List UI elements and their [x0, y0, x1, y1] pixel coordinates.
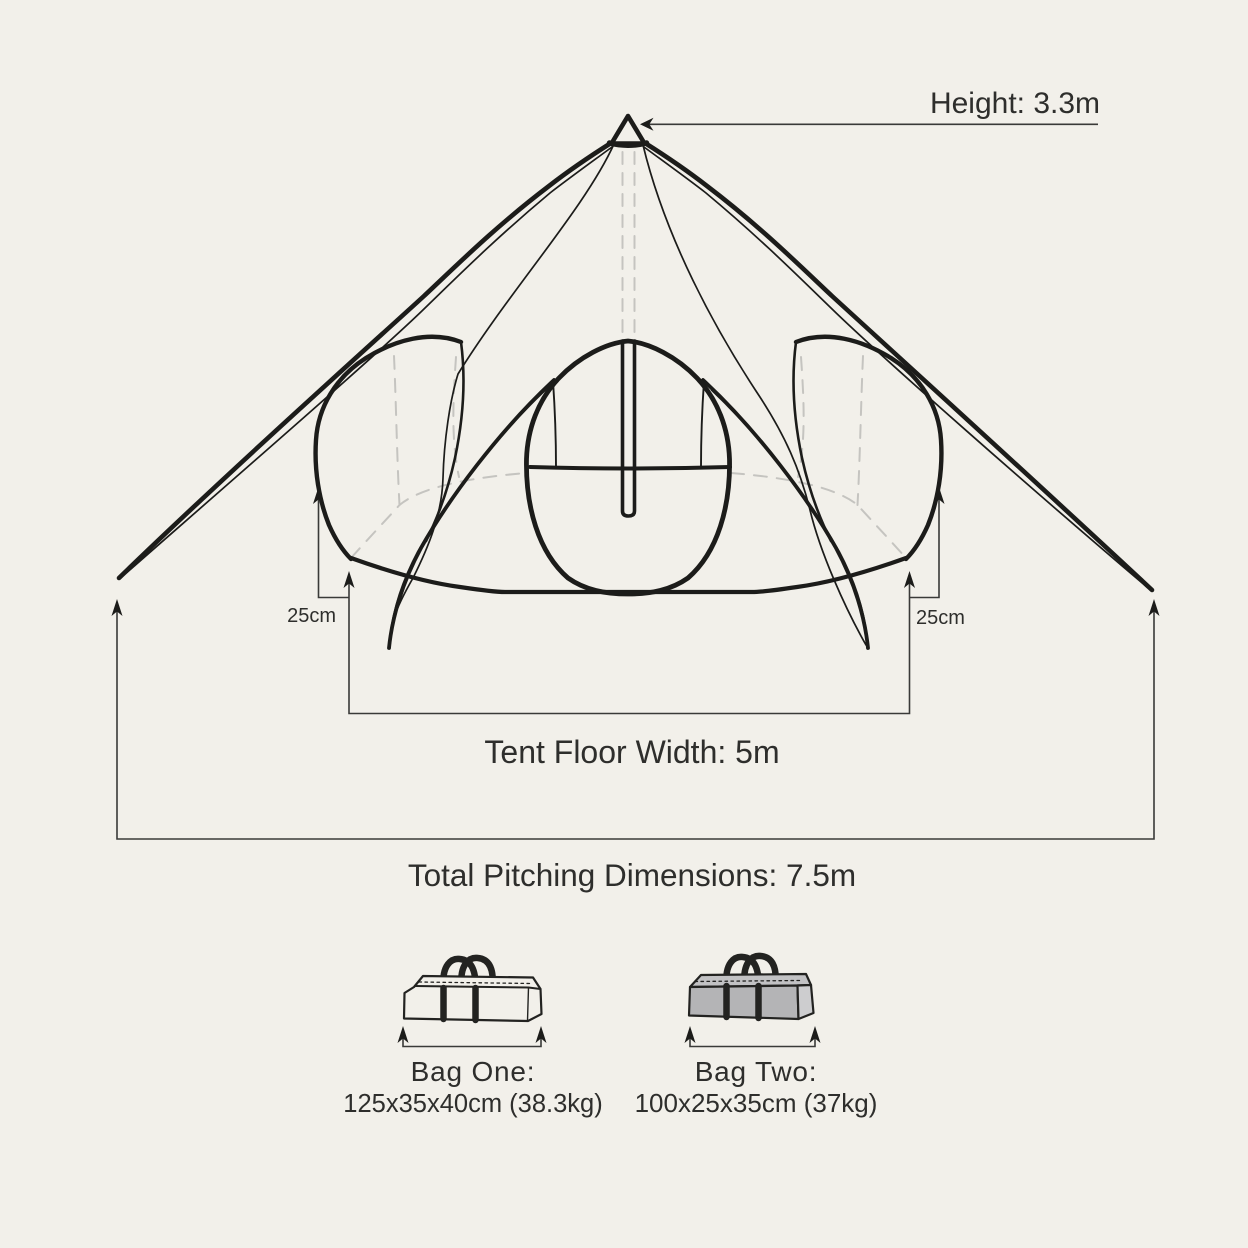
svg-text:125x35x40cm (38.3kg): 125x35x40cm (38.3kg)	[343, 1090, 602, 1118]
svg-text:Tent Floor Width: 5m: Tent Floor Width: 5m	[484, 734, 779, 770]
svg-text:Bag Two:: Bag Two:	[695, 1056, 818, 1087]
svg-text:25cm: 25cm	[287, 605, 336, 627]
svg-text:Bag One:: Bag One:	[411, 1056, 536, 1087]
svg-text:25cm: 25cm	[916, 607, 965, 629]
svg-text:100x25x35cm (37kg): 100x25x35cm (37kg)	[635, 1088, 878, 1118]
svg-text:Height: 3.3m: Height: 3.3m	[930, 87, 1100, 120]
svg-text:Total Pitching Dimensions: 7.5: Total Pitching Dimensions: 7.5m	[408, 857, 856, 893]
